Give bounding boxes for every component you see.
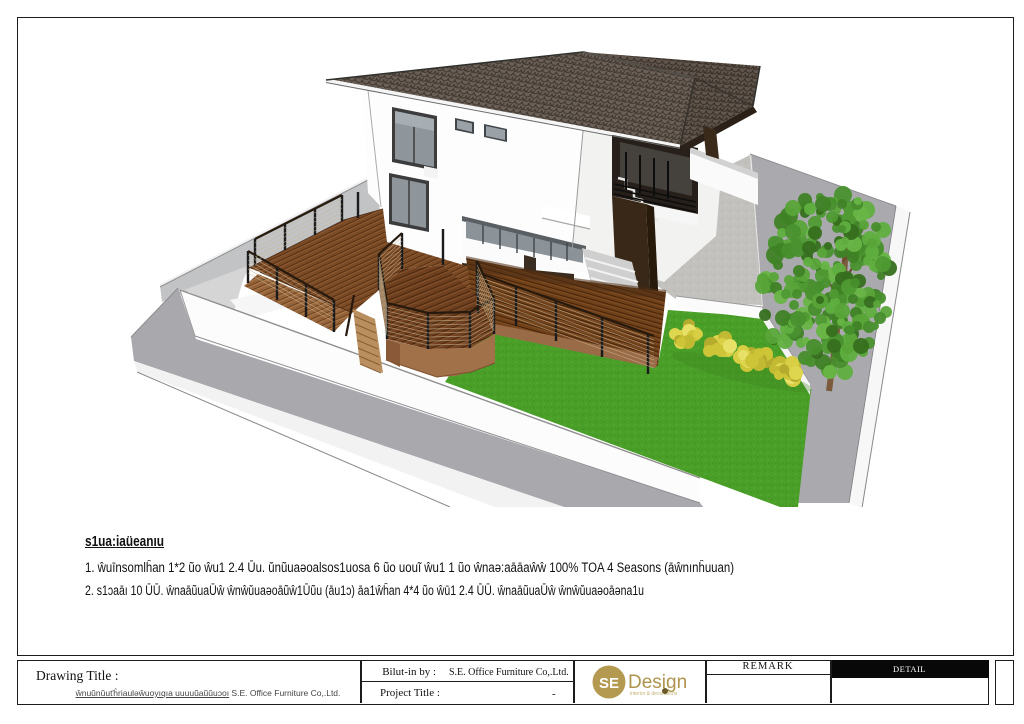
svg-text:SE: SE: [599, 675, 619, 692]
svg-text:interior & decorations: interior & decorations: [630, 691, 678, 697]
svg-text:Design: Design: [628, 672, 687, 693]
